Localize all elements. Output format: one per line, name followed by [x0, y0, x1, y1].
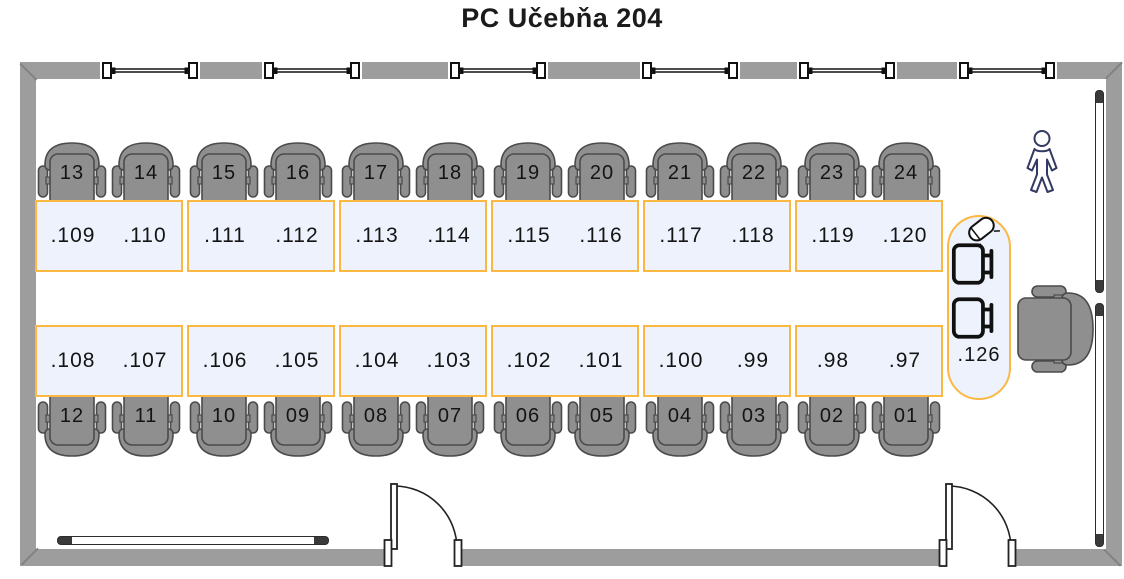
- chair: 13: [37, 139, 107, 207]
- pc-address-label: .117: [645, 224, 717, 248]
- room-title: PC Učebňa 204: [0, 3, 1124, 34]
- teacher-pc-label: .126: [947, 344, 1011, 367]
- chair: 04: [645, 392, 715, 460]
- pc-address-label: .99: [717, 349, 789, 373]
- desk: .98.97: [795, 325, 943, 397]
- chair-number: 17: [341, 161, 411, 185]
- wall-right: [1106, 62, 1122, 566]
- chair-number: 15: [189, 161, 259, 185]
- desk: .106.105: [187, 325, 335, 397]
- desk: .119.120: [795, 200, 943, 272]
- radiator: [57, 536, 329, 545]
- pc-address-label: .107: [109, 349, 181, 373]
- chair: 17: [341, 139, 411, 207]
- chair-number: 14: [111, 161, 181, 185]
- chair-number: 23: [797, 161, 867, 185]
- chair: 09: [263, 392, 333, 460]
- desk: .111.112: [187, 200, 335, 272]
- chair: 01: [871, 392, 941, 460]
- desk: .113.114: [339, 200, 487, 272]
- window: [957, 61, 1057, 80]
- pc-address-label: .100: [645, 349, 717, 373]
- pc-address-label: .114: [413, 224, 485, 248]
- door: [376, 476, 476, 570]
- chair-number: 08: [341, 404, 411, 428]
- person-icon: [1020, 129, 1064, 198]
- pc-address-label: .112: [261, 224, 333, 248]
- desk: .117.118: [643, 200, 791, 272]
- floor-plan: PC Učebňa 204 13 14 15 16: [0, 0, 1124, 579]
- pc-address-label: .104: [341, 349, 413, 373]
- computer-icon: [951, 243, 998, 290]
- chair-number: 06: [493, 404, 563, 428]
- chair-number: 18: [415, 161, 485, 185]
- chair: 14: [111, 139, 181, 207]
- chair-number: 01: [871, 404, 941, 428]
- pc-address-label: .106: [189, 349, 261, 373]
- chair-number: 02: [797, 404, 867, 428]
- computer-icon: [951, 297, 998, 344]
- chair-number: 22: [719, 161, 789, 185]
- radiator: [1095, 303, 1104, 547]
- chair-number: 05: [567, 404, 637, 428]
- desk: .104.103: [339, 325, 487, 397]
- chair-number: 09: [263, 404, 333, 428]
- pc-address-label: .120: [869, 224, 941, 248]
- chair-number: 24: [871, 161, 941, 185]
- chair: 07: [415, 392, 485, 460]
- pc-address-label: .109: [37, 224, 109, 248]
- window: [100, 61, 200, 80]
- wall-left: [20, 62, 36, 566]
- pc-address-label: .118: [717, 224, 789, 248]
- chair-number: 07: [415, 404, 485, 428]
- chair: 22: [719, 139, 789, 207]
- desk: .115.116: [491, 200, 639, 272]
- pc-address-label: .108: [37, 349, 109, 373]
- chair-number: 10: [189, 404, 259, 428]
- chair: 16: [263, 139, 333, 207]
- window: [448, 61, 548, 80]
- chair-number: 04: [645, 404, 715, 428]
- chair: 02: [797, 392, 867, 460]
- pc-address-label: .97: [869, 349, 941, 373]
- pc-address-label: .113: [341, 224, 413, 248]
- chair-number: 21: [645, 161, 715, 185]
- chair-number: 19: [493, 161, 563, 185]
- chair: 23: [797, 139, 867, 207]
- chair-number: 11: [111, 404, 181, 428]
- pc-address-label: .102: [493, 349, 565, 373]
- pc-address-label: .119: [797, 224, 869, 248]
- desk: .109.110: [35, 200, 183, 272]
- teacher-chair: [1016, 285, 1094, 378]
- chair: 11: [111, 392, 181, 460]
- window: [797, 61, 897, 80]
- pc-address-label: .111: [189, 224, 261, 248]
- door: [931, 476, 1030, 570]
- chair: 05: [567, 392, 637, 460]
- chair: 18: [415, 139, 485, 207]
- pc-address-label: .110: [109, 224, 181, 248]
- chair: 15: [189, 139, 259, 207]
- chair: 24: [871, 139, 941, 207]
- chair: 03: [719, 392, 789, 460]
- chair: 10: [189, 392, 259, 460]
- chair-number: 03: [719, 404, 789, 428]
- chair-number: 12: [37, 404, 107, 428]
- chair: 12: [37, 392, 107, 460]
- desk: .100.99: [643, 325, 791, 397]
- chair-number: 13: [37, 161, 107, 185]
- radiator: [1095, 90, 1104, 293]
- pc-address-label: .101: [565, 349, 637, 373]
- pc-address-label: .98: [797, 349, 869, 373]
- chair: 06: [493, 392, 563, 460]
- pc-address-label: .116: [565, 224, 637, 248]
- chair: 20: [567, 139, 637, 207]
- chair: 19: [493, 139, 563, 207]
- pc-address-label: .115: [493, 224, 565, 248]
- pc-address-label: .105: [261, 349, 333, 373]
- chair-number: 16: [263, 161, 333, 185]
- pc-address-label: .103: [413, 349, 485, 373]
- window: [262, 61, 362, 80]
- window: [640, 61, 740, 80]
- desk: .102.101: [491, 325, 639, 397]
- chair: 08: [341, 392, 411, 460]
- chair-number: 20: [567, 161, 637, 185]
- desk: .108.107: [35, 325, 183, 397]
- chair: 21: [645, 139, 715, 207]
